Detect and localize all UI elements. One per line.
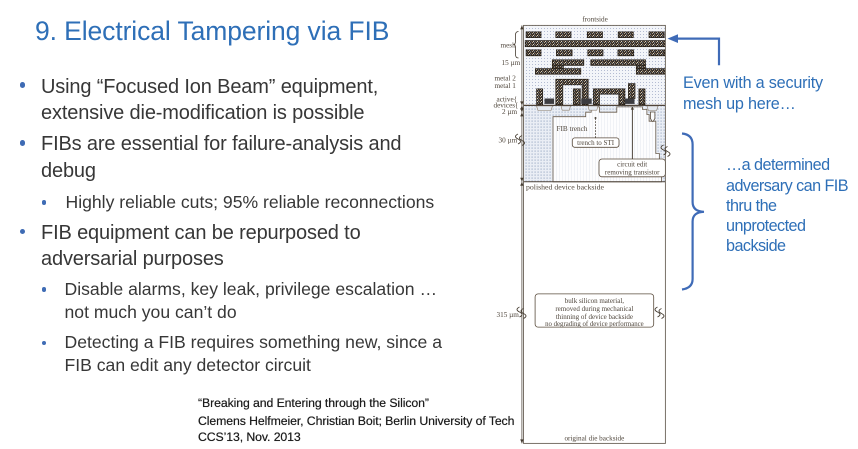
svg-text:frontside: frontside <box>582 16 608 24</box>
svg-text:original die backside: original die backside <box>564 435 624 443</box>
svg-text:mesh: mesh <box>501 42 517 50</box>
svg-text:30 µm: 30 µm <box>499 136 518 144</box>
svg-text:2 µm: 2 µm <box>502 108 518 116</box>
svg-text:315 µm: 315 µm <box>497 311 520 319</box>
svg-text:metal 1: metal 1 <box>495 82 517 90</box>
svg-text:FIB trench: FIB trench <box>557 125 588 133</box>
svg-text:no degrading of device perform: no degrading of device performance <box>545 321 644 328</box>
svg-text:15 µm: 15 µm <box>502 59 521 67</box>
svg-text:trench to STI: trench to STI <box>577 139 615 147</box>
svg-text:circuit edit: circuit edit <box>617 161 647 169</box>
svg-text:thinning of device backside: thinning of device backside <box>556 313 633 321</box>
svg-text:polished device backside: polished device backside <box>526 182 604 191</box>
svg-text:bulk silicon material,: bulk silicon material, <box>565 297 625 305</box>
svg-text:removing transistor: removing transistor <box>605 169 660 177</box>
svg-text:removed during mechanical: removed during mechanical <box>555 305 633 313</box>
